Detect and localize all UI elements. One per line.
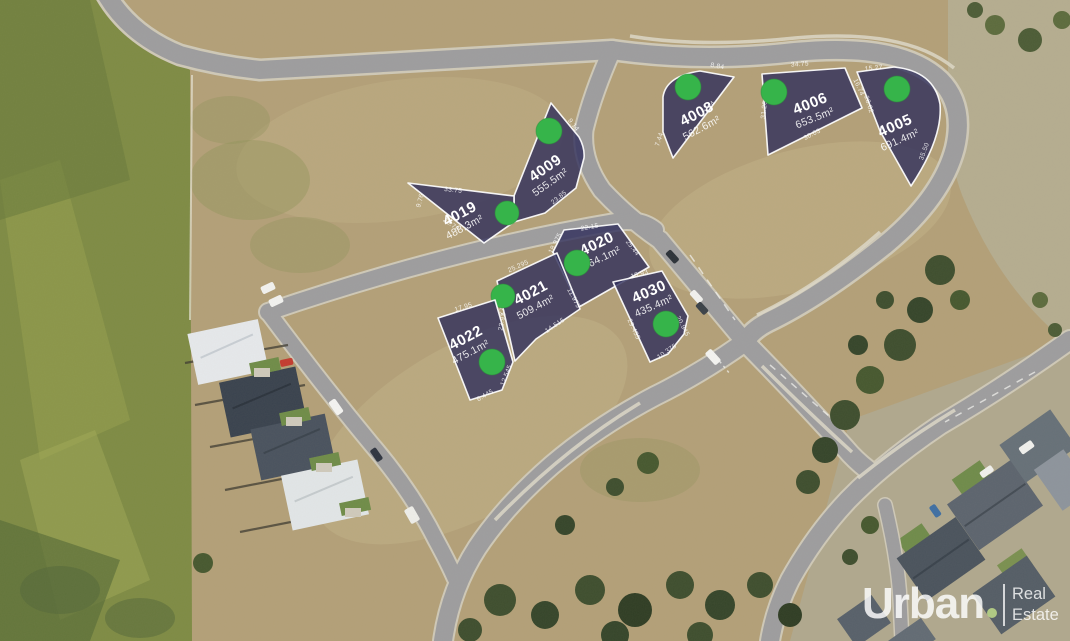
brand-tagline-2: Estate — [1012, 606, 1059, 624]
lot-marker[interactable] — [564, 250, 590, 276]
lot-marker[interactable] — [675, 74, 701, 100]
brand-tagline-1: Real — [1012, 585, 1046, 603]
lot-marker[interactable] — [536, 118, 562, 144]
lot-marker[interactable] — [479, 349, 505, 375]
brand-name: Urban — [862, 579, 984, 628]
lot-marker[interactable] — [653, 311, 679, 337]
lot-marker[interactable] — [884, 76, 910, 102]
aerial-map: 4005 691.4m² 15.27 28.02 35.50 4006 653.… — [0, 0, 1070, 641]
lot-marker[interactable] — [495, 201, 519, 225]
map-canvas: 4005 691.4m² 15.27 28.02 35.50 4006 653.… — [0, 0, 1070, 641]
lot-dimension: 34.75 — [791, 60, 809, 68]
lot-marker[interactable] — [761, 79, 787, 105]
brand-dot — [987, 608, 997, 618]
